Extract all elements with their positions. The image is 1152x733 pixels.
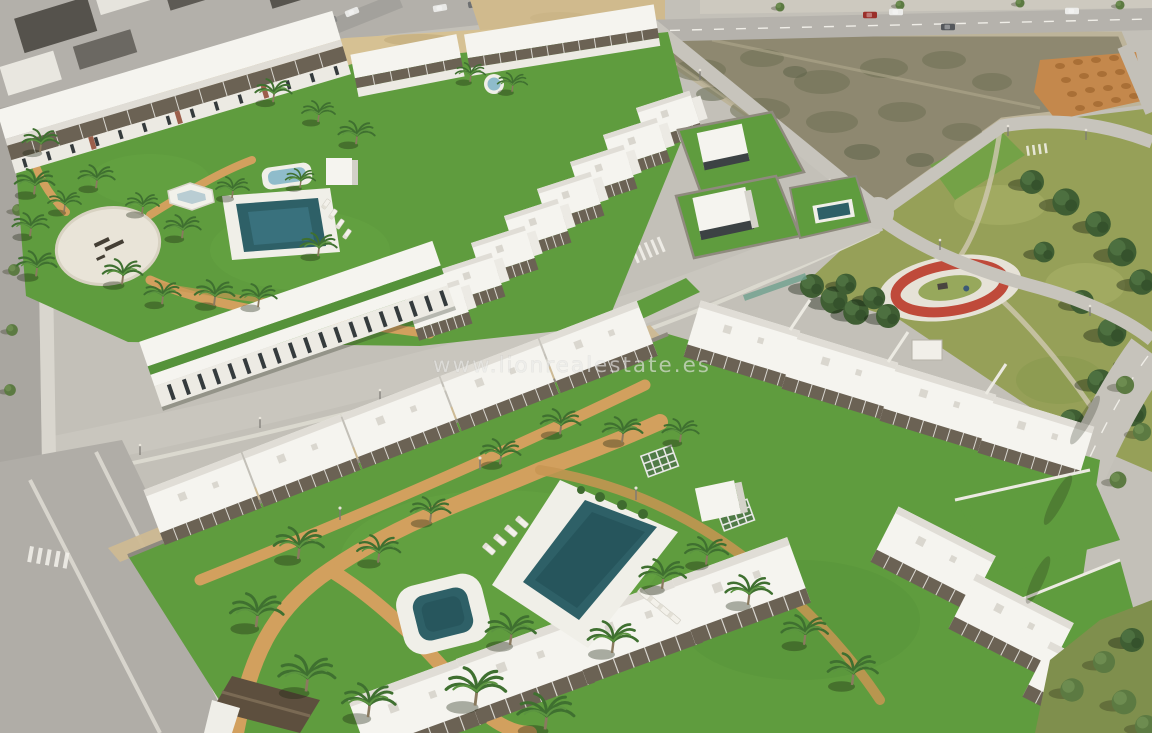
render-canvas: www.lionrealestate.es [0,0,1152,733]
aerial-development-render: www.lionrealestate.es [0,0,1152,733]
park-kiosk [912,340,942,360]
watermark: www.lionrealestate.es [433,353,711,378]
pool-shed-one [326,158,358,185]
main-pool-one [222,188,340,260]
